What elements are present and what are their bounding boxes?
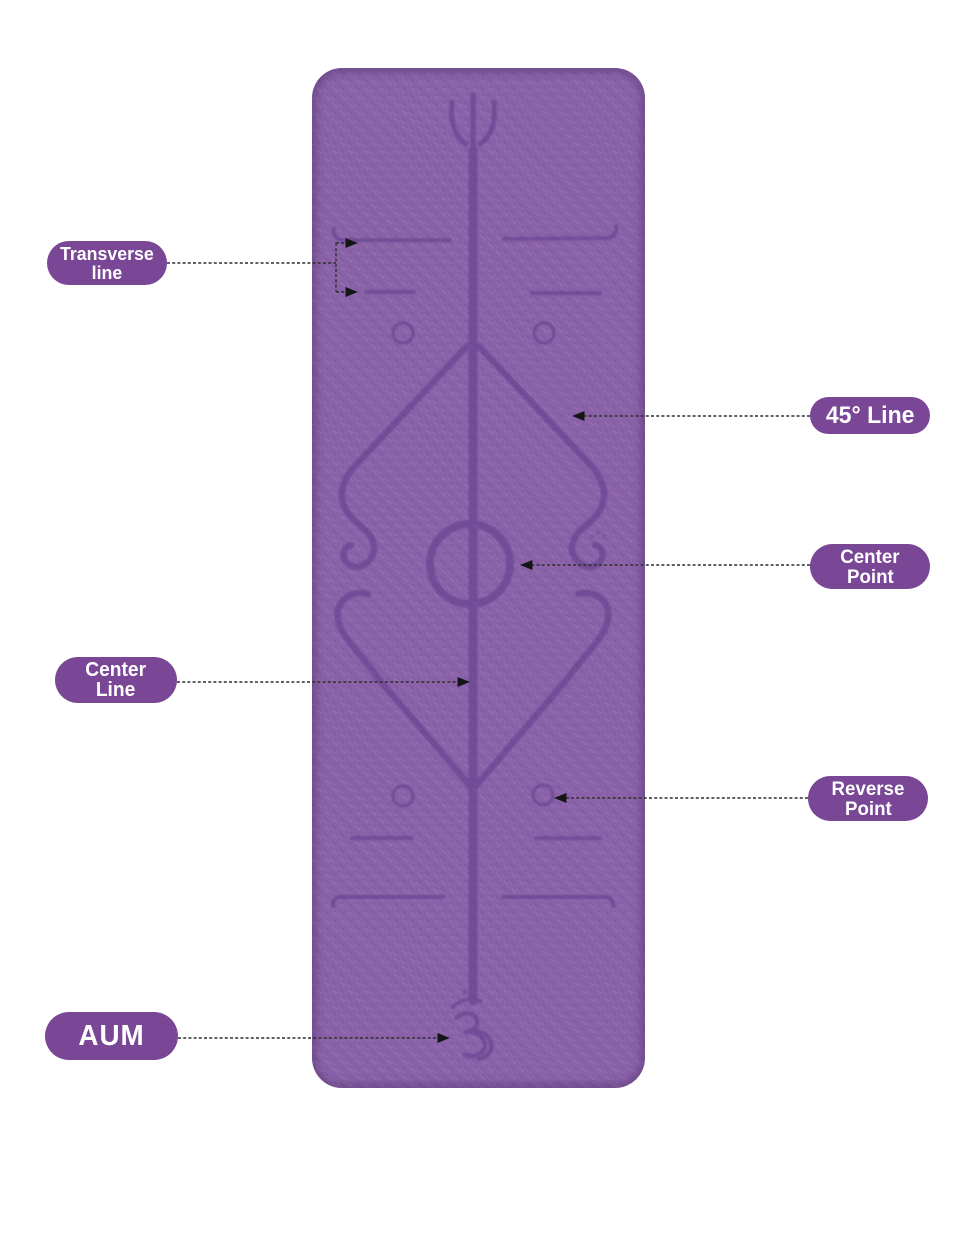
label-text: Point: [847, 567, 894, 587]
label-text: Transverse: [60, 244, 154, 263]
label-center-point: Center Point: [810, 544, 930, 589]
label-45-line: 45° Line: [810, 397, 930, 434]
label-text: Line: [96, 680, 135, 701]
yoga-mat: [312, 68, 645, 1088]
label-reverse-point: Reverse Point: [808, 776, 928, 821]
label-text: Center: [86, 660, 147, 681]
label-text: line: [92, 263, 123, 282]
label-center-line: Center Line: [55, 657, 177, 703]
label-text: Point: [845, 799, 892, 819]
label-text: Center: [840, 547, 899, 567]
mat-surface: [312, 68, 645, 1088]
label-text: Reverse: [832, 779, 905, 799]
label-transverse-line: Transverse line: [47, 241, 167, 285]
label-text: AUM: [78, 1020, 144, 1053]
product-diagram: Transverse line 45° Line Center Point Ce…: [0, 0, 960, 1235]
label-text: 45° Line: [826, 402, 915, 430]
label-aum: AUM: [45, 1012, 178, 1060]
